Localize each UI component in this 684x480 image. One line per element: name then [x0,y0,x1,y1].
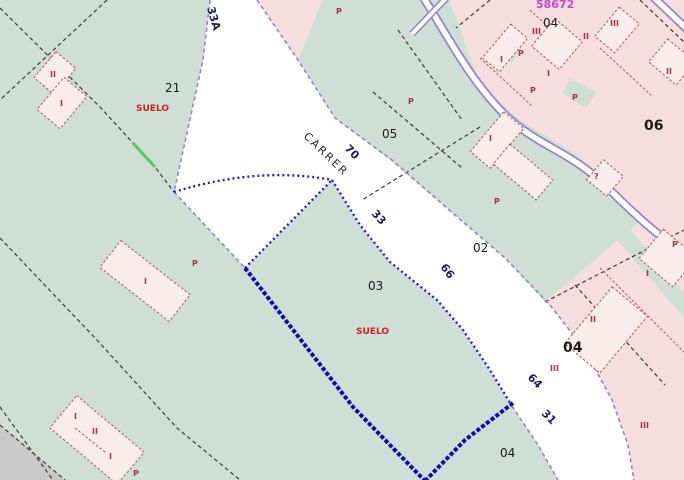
parcel-number-21[interactable]: 21 [165,81,180,95]
land-class-label: SUELO [356,327,389,337]
parcel-number-04-south[interactable]: 04 [500,446,515,460]
floor-label: P [192,259,198,268]
floor-label: III [640,421,649,430]
floor-label: III [550,364,559,373]
floor-label: ? [594,172,599,181]
floor-label: II [50,70,56,79]
floor-label: I [489,134,492,143]
floor-label: P [572,93,578,102]
parcel-number-04-north[interactable]: 04 [543,16,558,30]
floor-label: P [336,7,342,16]
floor-label: I [60,99,63,108]
parcel-number-04-east[interactable]: 04 [563,340,583,356]
floor-label: II [583,32,589,41]
parcel-number-05[interactable]: 05 [382,127,397,141]
land-class-label: SUELO [136,104,169,114]
parcel-number-03[interactable]: 03 [368,279,383,293]
floor-label: P [494,197,500,206]
cadastral-map-viewport[interactable]: 21 05 02 03 04 06 04 04 SUELO SUELO CARR… [0,0,684,480]
floor-label: P [133,469,139,478]
floor-label: P [408,97,414,106]
floor-label: I [109,452,112,461]
cadastral-map[interactable]: 21 05 02 03 04 06 04 04 SUELO SUELO CARR… [0,0,684,480]
floor-label: II [590,315,596,324]
plan-reference: 58672 [536,0,574,11]
floor-label: P [530,86,536,95]
floor-label: P [518,49,524,58]
floor-label: II [92,427,98,436]
parcel-number-06[interactable]: 06 [644,118,663,134]
parcel-number-02[interactable]: 02 [473,241,488,255]
floor-label: P [672,240,678,249]
floor-label: III [532,27,541,36]
floor-label: I [547,69,550,78]
floor-label: I [500,55,503,64]
floor-label: III [610,19,619,28]
floor-label: I [646,269,649,278]
floor-label: I [74,412,77,421]
floor-label: I [144,277,147,286]
floor-label: II [666,67,672,76]
